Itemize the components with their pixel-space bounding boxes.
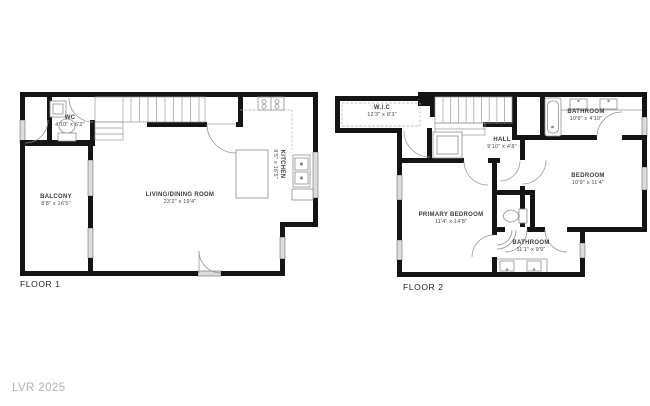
room-label-kitchen: KITCHEN 9'5" x 16'5" xyxy=(271,149,285,179)
floorplan-graphic xyxy=(0,0,650,406)
room-dims: 9'10" x 4'8" xyxy=(487,144,517,151)
kitchen-sink-icon xyxy=(292,155,313,200)
room-dims: 9'5" x 16'5" xyxy=(271,149,278,179)
room-label-balcony: BALCONY 8'8" x 16'5" xyxy=(40,194,72,208)
room-dims: 12'3" x 8'3" xyxy=(367,112,397,119)
room-name: HALL xyxy=(487,137,517,144)
room-dims: 11'1" x 9'9" xyxy=(512,247,549,254)
room-dims: 10'9" x 11'4" xyxy=(571,180,604,187)
room-label-living-dining: LIVING/DINING ROOM 23'2" x 19'4" xyxy=(146,192,214,206)
floor1-stairs xyxy=(95,97,205,140)
room-dims: 11'4" x 14'8" xyxy=(419,219,484,226)
hall-closet xyxy=(433,132,462,158)
room-name: BATHROOM xyxy=(512,240,549,247)
room-dims: 10'9" x 4'10" xyxy=(567,116,604,123)
room-label-wc: WC 4'10" x 6'2" xyxy=(55,115,85,129)
bathtub-icon xyxy=(545,98,561,136)
room-dims: 4'10" x 6'2" xyxy=(55,122,85,129)
room-dims: 8'8" x 16'5" xyxy=(40,201,72,208)
room-name: KITCHEN xyxy=(278,149,285,179)
room-label-primary-bedroom: PRIMARY BEDROOM 11'4" x 14'8" xyxy=(419,212,484,226)
room-name: PRIMARY BEDROOM xyxy=(419,212,484,219)
room-name: BEDROOM xyxy=(571,173,604,180)
room-name: LIVING/DINING ROOM xyxy=(146,192,214,199)
room-name: BATHROOM xyxy=(567,109,604,116)
floor2-title: FLOOR 2 xyxy=(403,282,444,292)
stove-icon xyxy=(258,97,284,110)
room-label-bedroom: BEDROOM 10'9" x 11'4" xyxy=(571,173,604,187)
watermark-text: LVR 2025 xyxy=(12,382,66,394)
room-label-wic: W.I.C 12'3" x 8'3" xyxy=(367,105,397,119)
room-label-bathroom-top: BATHROOM 10'9" x 4'10" xyxy=(567,109,604,123)
room-label-bathroom-bottom: BATHROOM 11'1" x 9'9" xyxy=(512,240,549,254)
floor2-stairs xyxy=(435,97,512,135)
room-label-hall: HALL 9'10" x 4'8" xyxy=(487,137,517,151)
floorplan-page: WC 4'10" x 6'2" BALCONY 8'8" x 16'5" LIV… xyxy=(0,0,650,406)
kitchen-cabinet-dashed xyxy=(240,110,292,150)
room-name: W.I.C xyxy=(367,105,397,112)
room-dims: 23'2" x 19'4" xyxy=(146,199,214,206)
kitchen-island xyxy=(236,150,268,198)
double-sink-vanity-bottom xyxy=(497,259,547,272)
floor1-title: FLOOR 1 xyxy=(20,279,61,289)
toilet-icon xyxy=(504,209,528,223)
room-name: WC xyxy=(55,115,85,122)
room-name: BALCONY xyxy=(40,194,72,201)
